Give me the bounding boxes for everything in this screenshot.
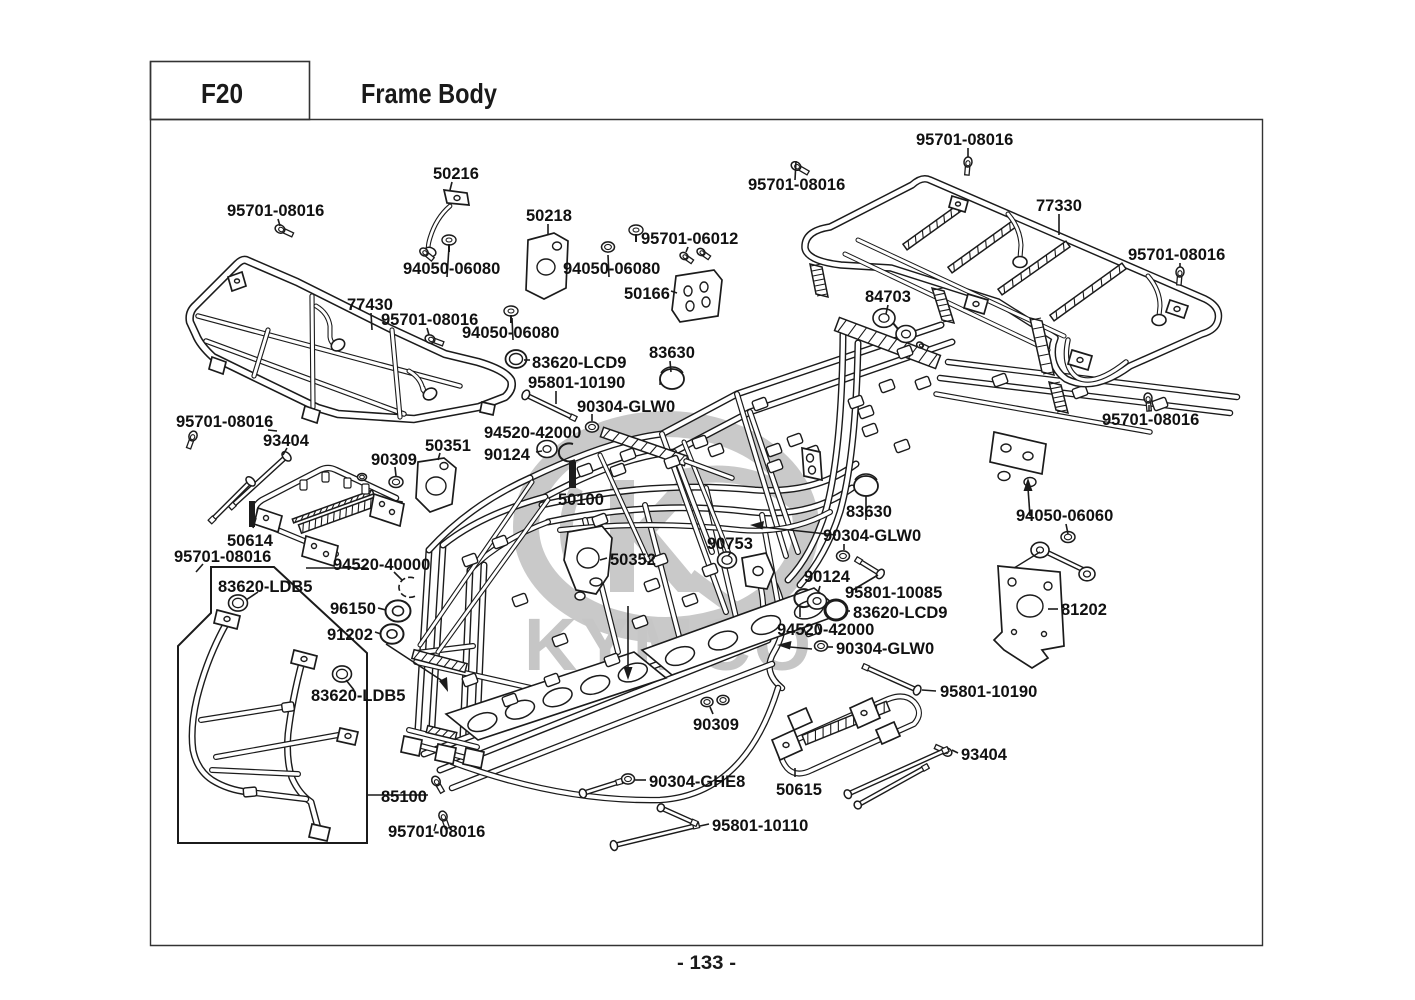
svg-text:90304-GLW0: 90304-GLW0 — [836, 640, 934, 658]
svg-text:94050-06060: 94050-06060 — [1016, 507, 1113, 525]
svg-text:90309: 90309 — [371, 451, 417, 469]
svg-text:95701-08016: 95701-08016 — [176, 413, 273, 431]
svg-text:50615: 50615 — [776, 781, 822, 799]
svg-text:95801-10190: 95801-10190 — [940, 683, 1037, 701]
svg-text:83630: 83630 — [846, 503, 892, 521]
svg-text:81202: 81202 — [1061, 601, 1107, 619]
svg-text:50166: 50166 — [624, 285, 670, 303]
svg-text:Frame Body: Frame Body — [361, 78, 497, 109]
svg-text:95801-10190: 95801-10190 — [528, 374, 625, 392]
svg-text:90304-GLW0: 90304-GLW0 — [577, 398, 675, 416]
svg-text:95701-08016: 95701-08016 — [388, 823, 485, 841]
svg-text:96150: 96150 — [330, 600, 376, 618]
svg-text:91202: 91202 — [327, 626, 373, 644]
svg-text:94050-06080: 94050-06080 — [563, 260, 660, 278]
svg-text:50352: 50352 — [610, 551, 656, 569]
svg-text:95701-08016: 95701-08016 — [1102, 411, 1199, 429]
svg-text:94520-40000: 94520-40000 — [333, 556, 430, 574]
svg-text:83630: 83630 — [649, 344, 695, 362]
svg-text:95701-08016: 95701-08016 — [174, 548, 271, 566]
svg-text:94050-06080: 94050-06080 — [462, 324, 559, 342]
svg-text:95701-08016: 95701-08016 — [227, 202, 324, 220]
svg-text:90124: 90124 — [484, 446, 531, 464]
svg-text:93404: 93404 — [263, 432, 310, 450]
svg-text:50100: 50100 — [558, 491, 604, 509]
svg-text:95701-08016: 95701-08016 — [1128, 246, 1225, 264]
svg-text:50216: 50216 — [433, 165, 479, 183]
svg-text:- 133 -: - 133 - — [677, 953, 736, 974]
svg-text:90309: 90309 — [693, 716, 739, 734]
svg-text:93404: 93404 — [961, 746, 1008, 764]
svg-text:F20: F20 — [201, 78, 243, 109]
svg-text:94520-42000: 94520-42000 — [484, 424, 581, 442]
svg-text:83620-LCD9: 83620-LCD9 — [853, 604, 947, 622]
svg-text:85100: 85100 — [381, 788, 427, 806]
svg-text:95801-10085: 95801-10085 — [845, 584, 942, 602]
svg-text:84703: 84703 — [865, 288, 911, 306]
svg-text:90124: 90124 — [804, 568, 851, 586]
svg-text:90753: 90753 — [707, 535, 753, 553]
svg-text:83620-LDB5: 83620-LDB5 — [311, 687, 405, 705]
svg-text:90304-GLW0: 90304-GLW0 — [823, 527, 921, 545]
svg-text:83620-LDB5: 83620-LDB5 — [218, 578, 312, 596]
svg-text:90304-GHE8: 90304-GHE8 — [649, 773, 745, 791]
svg-text:94520-42000: 94520-42000 — [777, 621, 874, 639]
svg-text:95701-08016: 95701-08016 — [748, 176, 845, 194]
svg-text:77330: 77330 — [1036, 197, 1082, 215]
svg-text:95801-10110: 95801-10110 — [712, 817, 808, 835]
svg-text:50218: 50218 — [526, 207, 572, 225]
svg-text:50351: 50351 — [425, 437, 471, 455]
svg-text:95701-06012: 95701-06012 — [641, 230, 738, 248]
svg-text:95701-08016: 95701-08016 — [916, 131, 1013, 149]
svg-text:94050-06080: 94050-06080 — [403, 260, 500, 278]
svg-text:83620-LCD9: 83620-LCD9 — [532, 354, 626, 372]
